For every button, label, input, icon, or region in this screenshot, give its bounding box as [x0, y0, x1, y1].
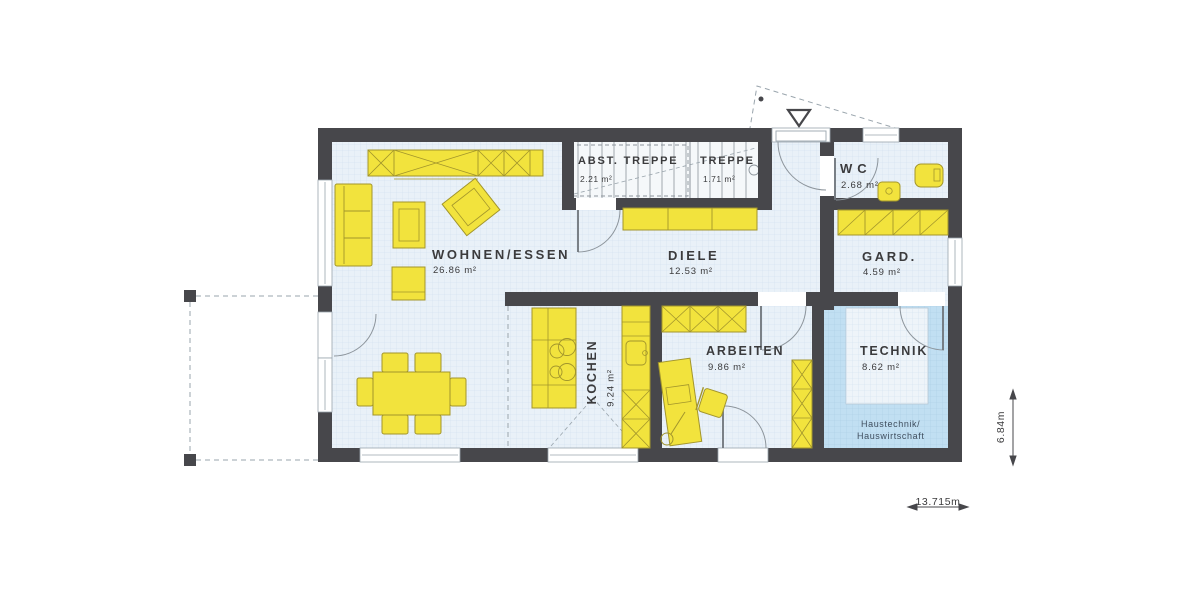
room-area-wc: 2.68 m² [841, 181, 879, 191]
dimension-width-label: 13.715m [915, 497, 960, 508]
room-label-technik: TECHNIK [860, 345, 928, 358]
room-area-wohnen-essen: 26.86 m² [433, 266, 477, 276]
room-label-kochen: KOCHEN [586, 340, 599, 405]
window-bottom-wohnen [360, 448, 460, 462]
room-label-abstellraum: ABST. TREPPE [578, 156, 678, 167]
armchair-1 [393, 202, 425, 248]
room-label-diele: DIELE [668, 249, 719, 262]
technik-door-opening [898, 292, 945, 306]
dimension-height-label: 6.84m [996, 411, 1007, 443]
door-bottom-arbeiten [718, 448, 768, 462]
room-label-wc: WC [840, 162, 872, 175]
wardrobe-gard [838, 210, 948, 235]
room-label-garderobe: GARD. [862, 250, 917, 263]
room-label-wohnen-essen: WOHNEN/ESSEN [432, 248, 570, 261]
entrance-arrow-icon [788, 110, 810, 126]
canopy-node-dot [759, 97, 764, 102]
cabinets-arbeiten-top [662, 306, 746, 332]
armchair-2 [392, 267, 425, 300]
floor-plan: WOHNEN/ESSEN 26.86 m² ABST. TREPPE 2.21 … [0, 0, 1200, 600]
room-area-diele: 12.53 m² [669, 267, 713, 277]
terrace [190, 296, 318, 460]
cabinets-arbeiten-right [792, 360, 812, 448]
room-area-garderobe: 4.59 m² [863, 268, 901, 278]
terrace-door-opening [318, 312, 332, 358]
washbasin [878, 182, 900, 201]
room-area-arbeiten: 9.86 m² [708, 363, 746, 373]
room-area-kochen: 9.24 m² [606, 369, 616, 407]
room-area-technik: 8.62 m² [862, 363, 900, 373]
kitchen-island [532, 308, 576, 408]
toilet [915, 164, 943, 187]
staircase [566, 142, 760, 198]
window-left-upper [318, 180, 332, 286]
window-top-wc [863, 128, 899, 142]
arbeiten-door-opening [758, 292, 806, 306]
technik-note-line1: Haustechnik/ [861, 420, 920, 429]
sofa [335, 184, 372, 266]
entrance-door-opening [772, 128, 830, 142]
sideboard-diele [623, 208, 757, 230]
kitchen-counter [622, 306, 650, 448]
room-label-arbeiten: ARBEITEN [706, 345, 784, 358]
abst-door-opening [576, 198, 616, 210]
window-left-lower [318, 358, 332, 412]
room-area-abstellraum: 2.21 m² [580, 175, 612, 184]
dining-table [373, 372, 450, 415]
window-right-gard [948, 238, 962, 286]
technik-note-line2: Hauswirtschaft [857, 432, 924, 441]
sideboard-wohnen [368, 150, 543, 179]
entrance-door-leaf [776, 131, 826, 141]
room-area-treppe: 1.71 m² [703, 175, 735, 184]
room-label-treppe: TREPPE [700, 156, 755, 167]
floor-plan-graphics [0, 0, 1200, 600]
